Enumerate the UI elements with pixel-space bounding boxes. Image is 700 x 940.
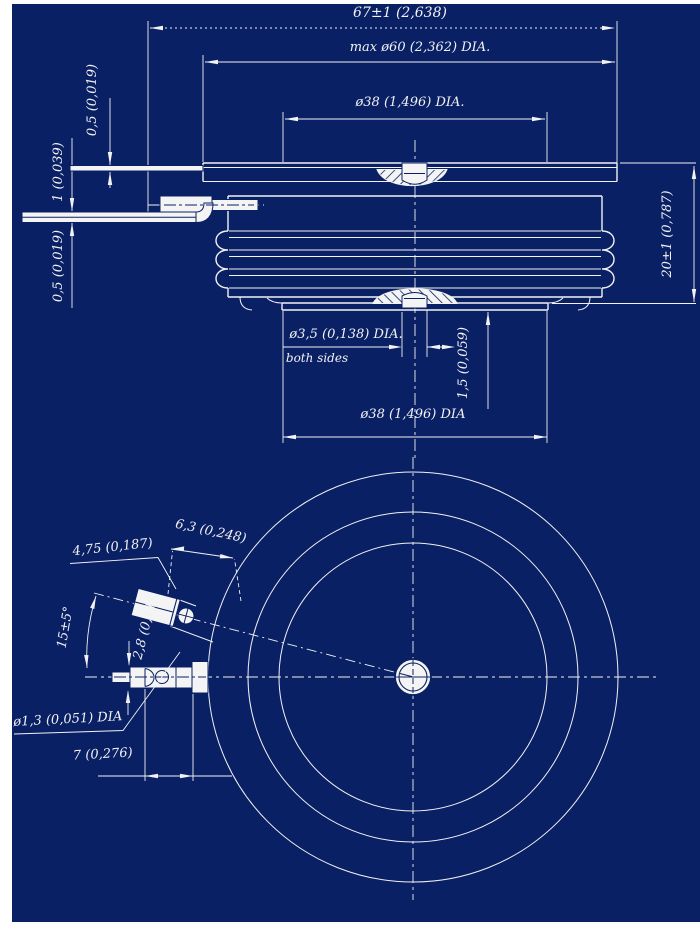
dim-center-hole-dia: ø3,5 (0,138) DIA. bbox=[288, 327, 402, 342]
blueprint-page: 67±1 (2,638) max ø60 (2,362) DIA. ø38 (1… bbox=[0, 0, 700, 940]
dim-lead-thickness-bottom: 0,5 (0,019) bbox=[51, 230, 66, 302]
dim-max-diameter: max ø60 (2,362) DIA. bbox=[350, 40, 491, 55]
dim-center-hole-note: both sides bbox=[286, 351, 348, 365]
dim-lead-thickness-top: 0,5 (0,019) bbox=[85, 64, 100, 136]
drawing-sheet bbox=[12, 4, 700, 922]
dim-recess-offset: 1,5 (0,059) bbox=[456, 327, 471, 399]
dim-pole-diameter-bottom: ø38 (1,496) DIA bbox=[360, 407, 466, 422]
dim-pole-diameter-top: ø38 (1,496) DIA. bbox=[354, 95, 464, 110]
center-hole bbox=[395, 659, 431, 695]
technical-drawing: 67±1 (2,638) max ø60 (2,362) DIA. ø38 (1… bbox=[0, 0, 700, 940]
dim-overall-width: 67±1 (2,638) bbox=[353, 5, 447, 21]
dim-hole-offset: 7 (0,276) bbox=[73, 745, 133, 763]
dim-lead-thickness-mid: 1 (0,039) bbox=[51, 142, 66, 202]
dim-height: 20±1 (0,787) bbox=[660, 190, 675, 278]
